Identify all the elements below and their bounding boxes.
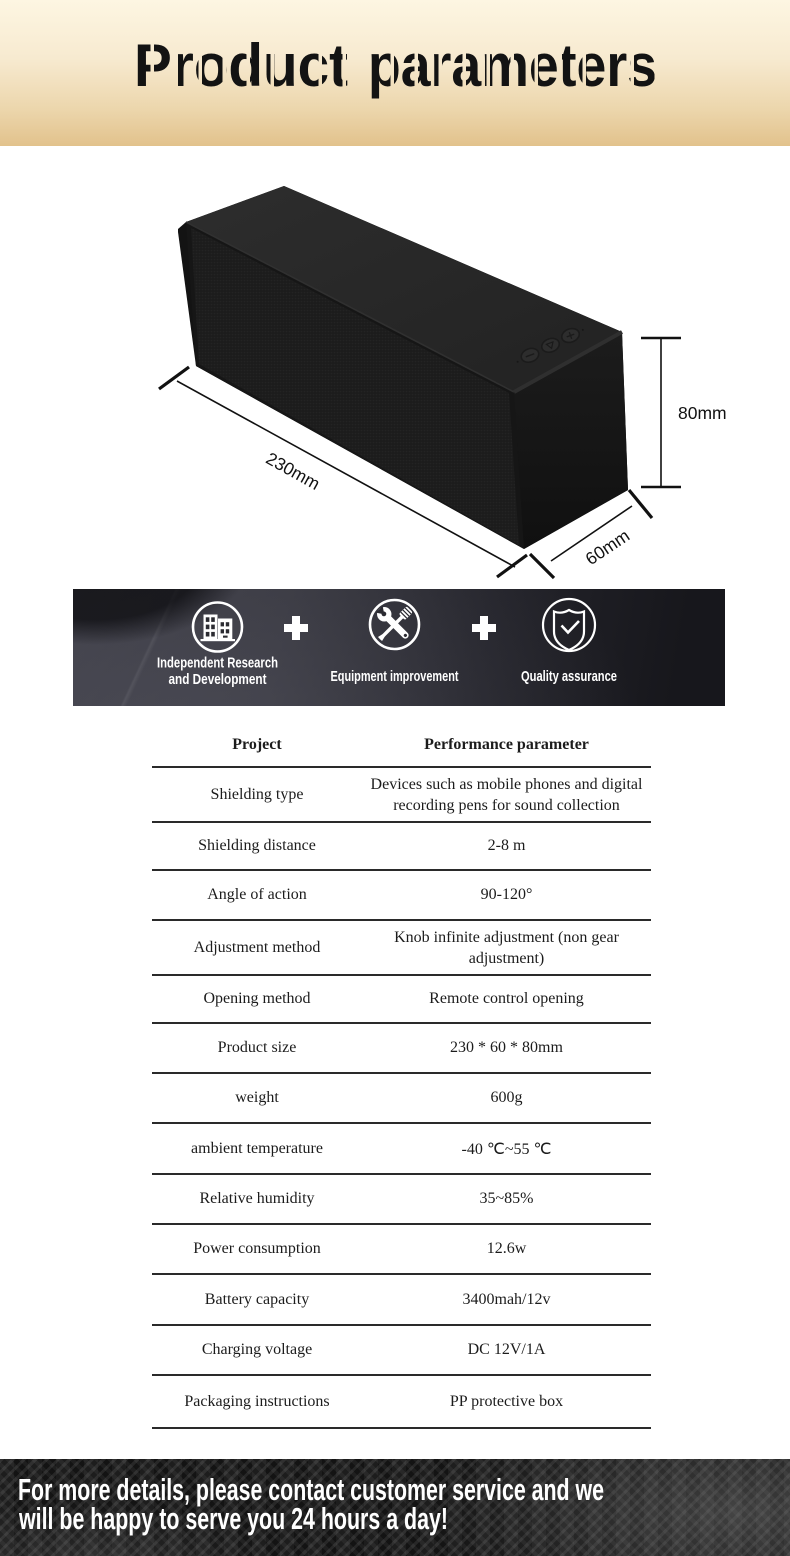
svg-text:60mm: 60mm: [582, 525, 633, 569]
svg-text:will be happy to serve you 24: will be happy to serve you 24 hours a da…: [18, 1501, 448, 1536]
svg-text:80mm: 80mm: [678, 403, 727, 423]
svg-text:Quality assurance: Quality assurance: [521, 668, 617, 685]
svg-text:Equipment improvement: Equipment improvement: [331, 668, 459, 685]
svg-text:Product: Product: [134, 32, 348, 99]
svg-text:and Development: and Development: [169, 671, 267, 688]
svg-text:230mm: 230mm: [263, 448, 324, 494]
svg-text:parameters: parameters: [368, 32, 657, 99]
svg-text:Independent Research: Independent Research: [157, 655, 278, 672]
